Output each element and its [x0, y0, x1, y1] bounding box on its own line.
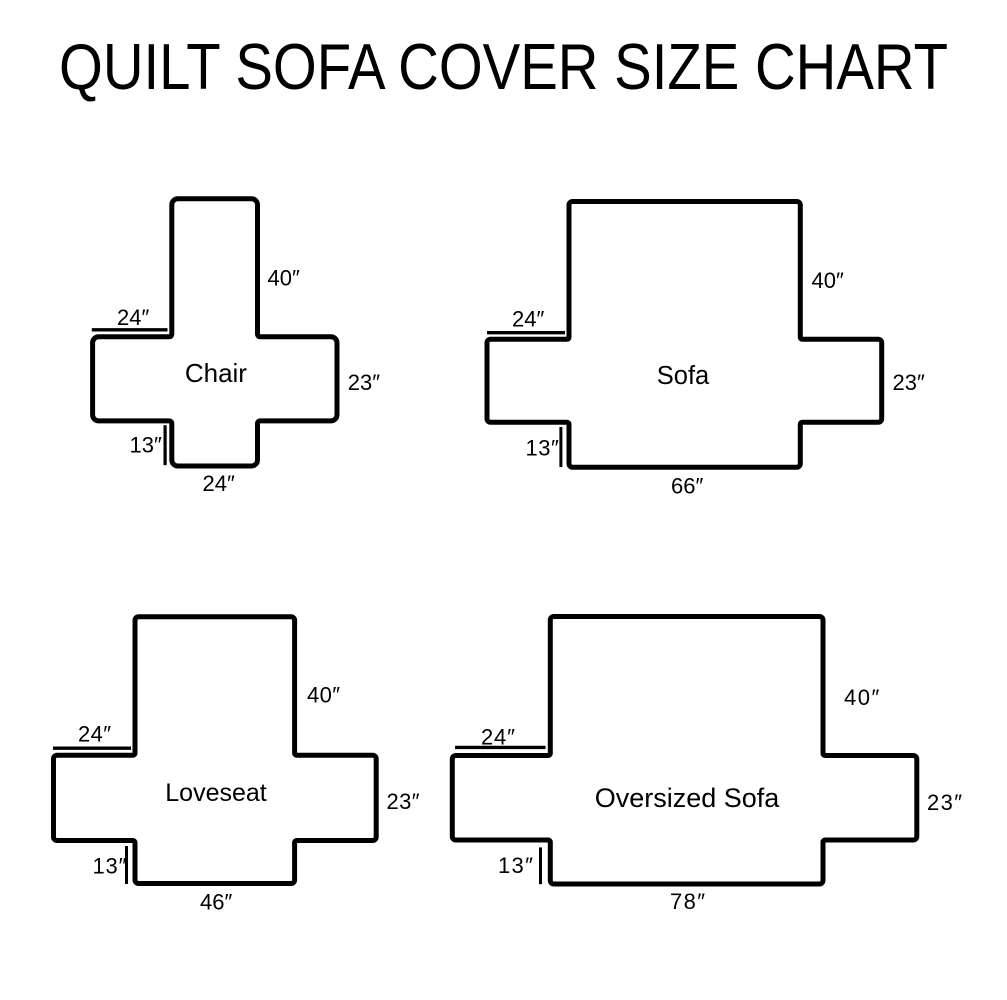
- svg-text:78″: 78″: [670, 889, 706, 914]
- svg-text:24″: 24″: [512, 307, 544, 332]
- svg-text:40″: 40″: [844, 685, 881, 710]
- svg-text:23″: 23″: [387, 789, 420, 814]
- svg-text:QUILT SOFA COVER SIZE CHART: QUILT SOFA COVER SIZE CHART: [59, 30, 948, 103]
- svg-text:66″: 66″: [671, 474, 703, 499]
- svg-text:13″: 13″: [93, 853, 128, 878]
- svg-text:13″: 13″: [498, 853, 534, 878]
- svg-text:40″: 40″: [307, 682, 340, 707]
- svg-text:24″: 24″: [203, 471, 235, 496]
- svg-text:24″: 24″: [78, 722, 111, 747]
- svg-text:13″: 13″: [130, 432, 162, 457]
- svg-text:Oversized Sofa: Oversized Sofa: [595, 783, 781, 813]
- svg-text:23″: 23″: [348, 370, 380, 395]
- svg-text:24″: 24″: [117, 305, 149, 330]
- svg-text:13″: 13″: [526, 436, 560, 461]
- svg-text:40″: 40″: [268, 266, 300, 291]
- svg-text:24″: 24″: [481, 724, 516, 749]
- svg-text:23″: 23″: [893, 370, 925, 395]
- svg-text:40″: 40″: [812, 268, 844, 293]
- svg-text:Sofa: Sofa: [657, 362, 710, 390]
- svg-text:23″: 23″: [927, 790, 963, 815]
- svg-text:Chair: Chair: [185, 358, 247, 388]
- svg-text:46″: 46″: [200, 889, 232, 914]
- svg-text:Loveseat: Loveseat: [165, 779, 267, 807]
